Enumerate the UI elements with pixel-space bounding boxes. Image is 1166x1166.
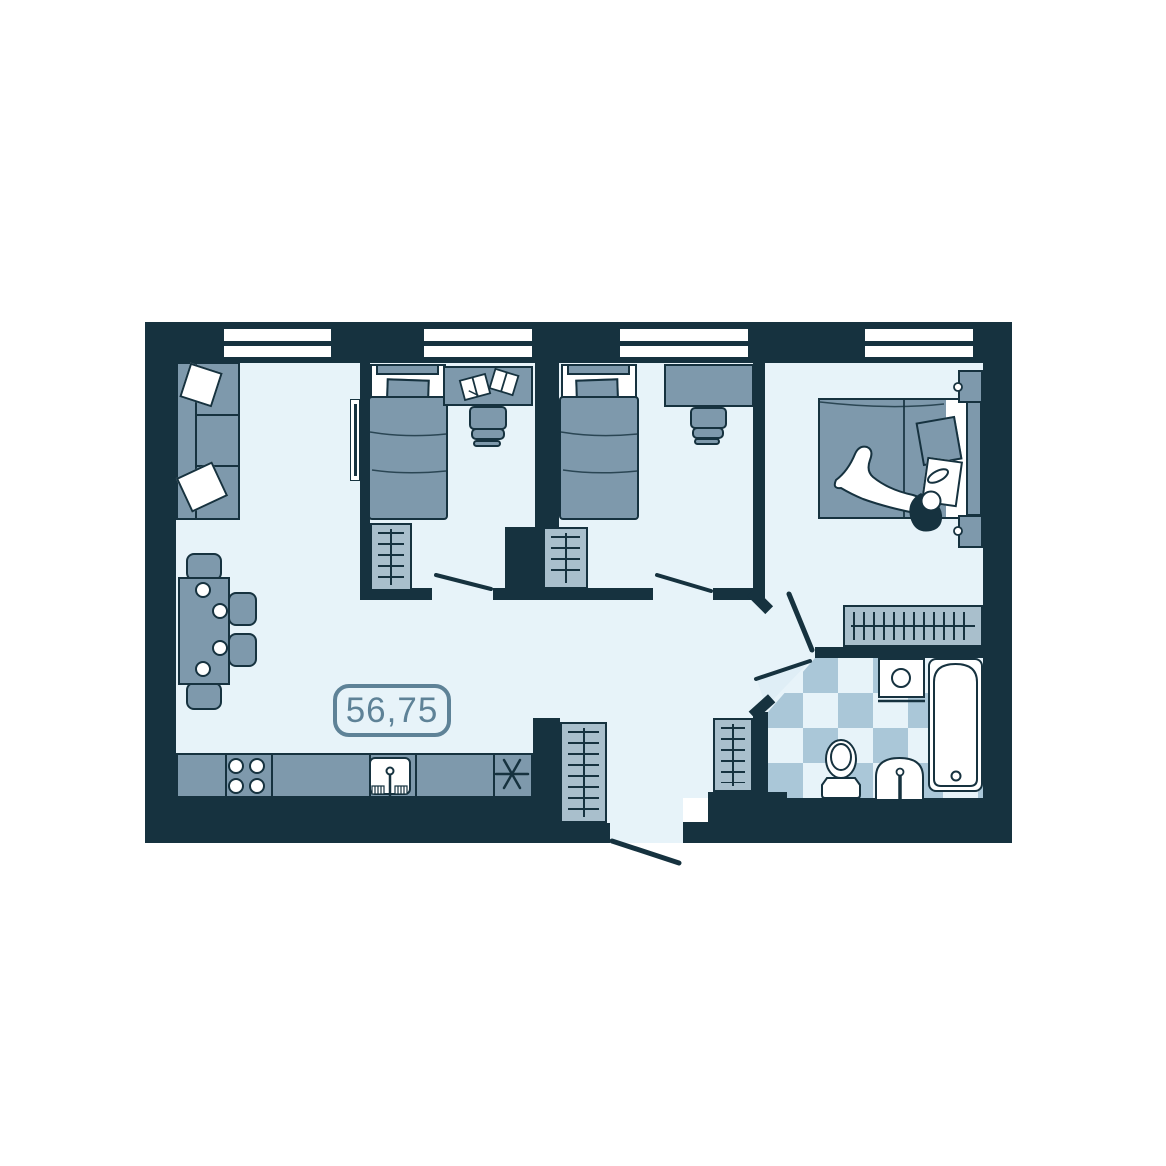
bed1-chair-back — [471, 428, 505, 440]
area-value: 56,75 — [346, 691, 439, 731]
window-4b — [865, 346, 973, 357]
bed2-desk — [664, 364, 754, 407]
wall-corridor-2 — [493, 588, 653, 600]
sofa-cushion-line-1 — [195, 414, 238, 416]
hall-wardrobe-left — [560, 722, 607, 823]
wardrobe-hangers — [721, 727, 745, 783]
rail-rod — [851, 625, 975, 627]
window-1b — [224, 346, 331, 357]
bed2-chair-lip — [694, 438, 720, 445]
floor-plan-canvas: 56,75 — [0, 0, 1166, 1166]
wall-entry-step-b — [708, 792, 787, 843]
master-pillow-white — [921, 457, 963, 508]
window-3b — [620, 346, 748, 357]
bed1-headboard — [376, 364, 439, 375]
master-clothes-rail — [843, 605, 983, 647]
bed2-blanket — [559, 396, 639, 520]
hall-wardrobe-right — [713, 718, 753, 792]
bed2-headboard — [567, 364, 630, 375]
wall-alcove-bottom — [560, 823, 610, 843]
nightstand-top — [958, 370, 983, 403]
master-bed-fold — [903, 400, 905, 517]
dining-chair-right-1 — [228, 592, 257, 626]
wall-bottom-left — [145, 798, 560, 843]
counter-divider-2 — [271, 755, 273, 796]
wall-entry-step-a — [683, 822, 708, 843]
window-2 — [424, 329, 532, 341]
washing-machine — [878, 658, 925, 698]
bed2-wardrobe — [543, 527, 588, 589]
master-bed-headboard — [966, 401, 982, 516]
bed2-chair-seat — [690, 407, 727, 429]
wall-bottom-bathroom — [787, 798, 1012, 843]
wall-bedroom1-bedroom2 — [535, 363, 559, 527]
area-badge: 56,75 — [333, 684, 451, 737]
bed1-chair-seat — [469, 406, 507, 430]
dining-table — [178, 577, 230, 685]
floor-entrance-gap — [610, 798, 683, 843]
wall-bathroom-top — [815, 647, 983, 658]
tv-icon — [350, 399, 360, 481]
dining-chair-bottom — [186, 682, 222, 710]
wall-right — [983, 322, 1012, 843]
wall-left — [145, 322, 176, 843]
wardrobe-hangers — [568, 731, 599, 814]
wall-pier-bedroom1 — [505, 527, 543, 590]
wardrobe-hangers — [551, 536, 580, 580]
wardrobe-hangers — [378, 532, 404, 582]
bed1-blanket — [368, 396, 448, 520]
kitchen-counter — [176, 753, 533, 798]
wall-bathroom-left — [753, 712, 768, 792]
window-2b — [424, 346, 532, 357]
bed1-desk — [443, 366, 533, 406]
dining-chair-right-2 — [228, 633, 257, 667]
bed1-wardrobe — [370, 523, 412, 591]
tv-screen — [354, 404, 357, 476]
counter-divider-5 — [493, 755, 495, 796]
window-3 — [620, 329, 748, 341]
wall-bedroom2-master — [753, 363, 765, 598]
kitchen-sink — [369, 757, 411, 795]
bed1-chair-lip — [473, 440, 501, 447]
window-4 — [865, 329, 973, 341]
wall-corridor-3 — [713, 588, 763, 600]
bathtub — [928, 658, 983, 792]
counter-divider-1 — [225, 755, 227, 796]
wall-entry-pier — [533, 718, 560, 843]
door-leaf-entrance — [612, 841, 679, 863]
nightstand-bottom — [958, 515, 983, 548]
window-1 — [224, 329, 331, 341]
counter-divider-4 — [415, 755, 417, 796]
